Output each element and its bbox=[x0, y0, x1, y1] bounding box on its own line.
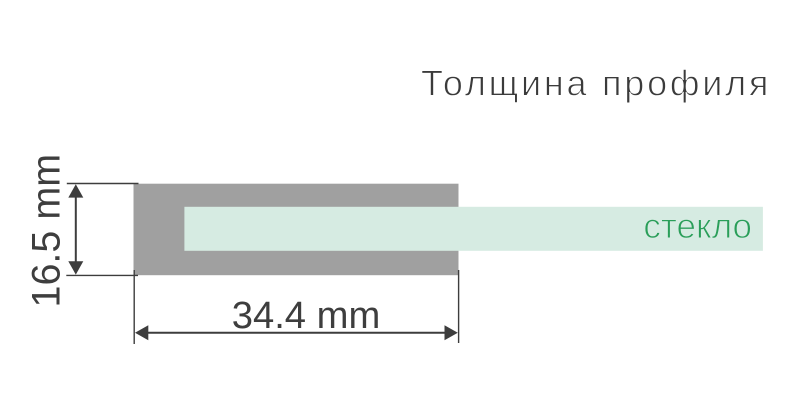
svg-text:стекло: стекло bbox=[643, 207, 752, 246]
svg-text:34.4 mm: 34.4 mm bbox=[232, 294, 381, 337]
svg-text:Толщина профиля: Толщина профиля bbox=[421, 62, 771, 103]
svg-text:16.5 mm: 16.5 mm bbox=[24, 154, 68, 308]
